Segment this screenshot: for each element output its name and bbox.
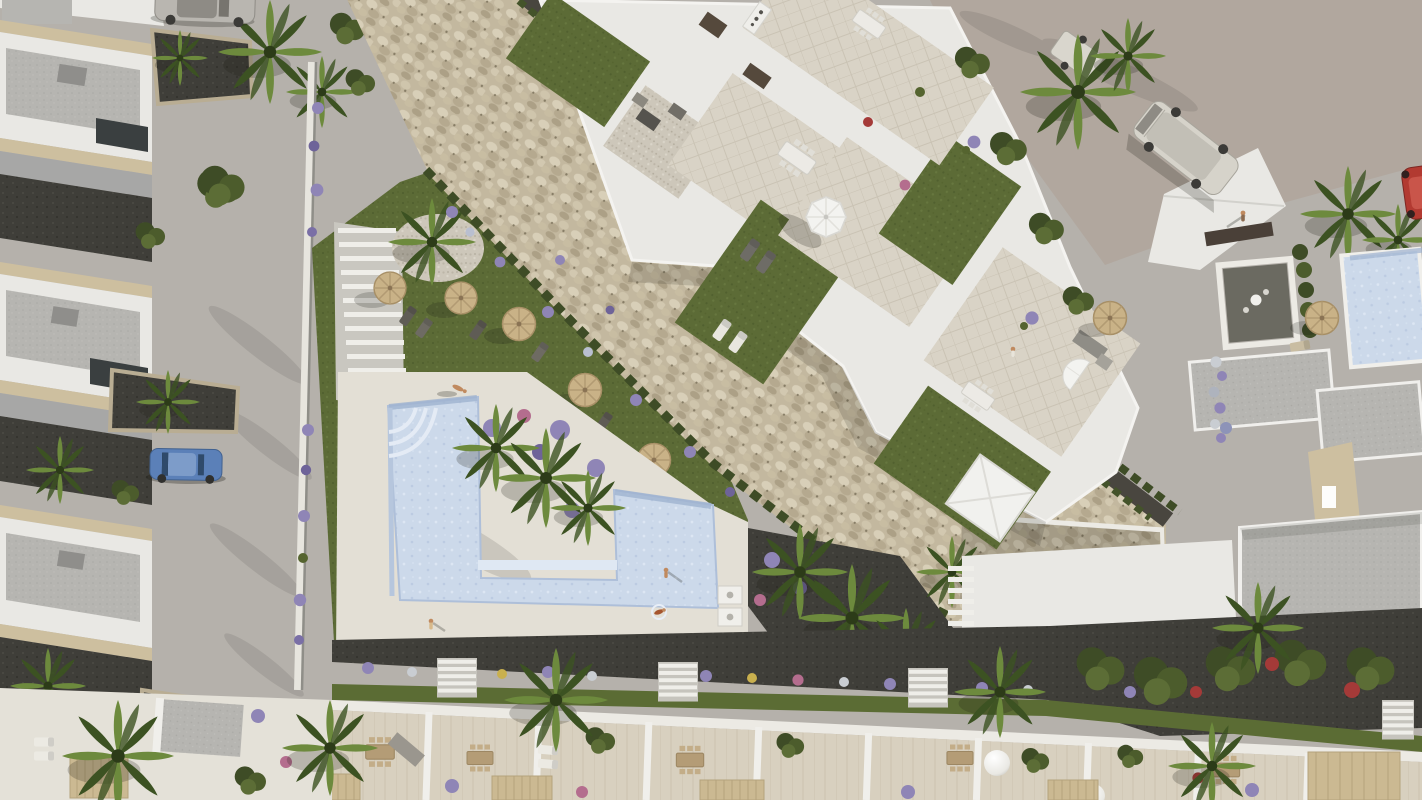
palm-tree <box>1020 34 1136 150</box>
straw-umbrella <box>569 374 602 407</box>
palm-tree <box>286 56 358 128</box>
stairs <box>437 658 477 698</box>
palm-tree <box>282 700 378 796</box>
villa-1 <box>0 20 152 198</box>
lounger <box>34 752 54 761</box>
palm-tree <box>152 30 208 86</box>
palm-tree <box>954 646 1046 738</box>
private-pool <box>1341 249 1422 367</box>
villa-3 <box>0 505 152 661</box>
palm-tree <box>550 470 626 546</box>
stairs <box>658 662 698 702</box>
palm-tree <box>26 436 94 504</box>
palm-tree <box>752 524 848 620</box>
wood-dining-set <box>467 745 493 772</box>
straw-umbrella <box>445 282 477 314</box>
white-parasol <box>806 197 846 237</box>
lounger <box>538 759 559 770</box>
palm-tree <box>136 370 200 434</box>
round-table <box>1251 295 1262 306</box>
wood-dining-set <box>947 745 973 772</box>
lounger <box>34 738 54 747</box>
bottom-left-terraces <box>0 688 378 800</box>
stairs <box>908 668 948 708</box>
white-dome-lamp <box>984 750 1010 776</box>
stairs <box>1382 700 1414 740</box>
palm-tree <box>504 648 608 752</box>
straw-umbrella <box>1306 302 1339 335</box>
pool-bench <box>478 560 617 570</box>
straw-umbrella <box>503 308 536 341</box>
palm-tree <box>1212 582 1304 674</box>
blue-car <box>146 448 227 484</box>
villa0-roofdeck <box>2 0 72 24</box>
wood-dining-set <box>676 746 703 774</box>
palm-tree <box>1090 18 1166 94</box>
straw-umbrella <box>374 272 406 304</box>
small-roof <box>158 699 243 757</box>
aerial-render-canvas: Top-down aerial 3D rendering of a white … <box>0 0 1422 800</box>
straw-umbrella <box>1094 302 1127 335</box>
aerial-render-image: Top-down aerial 3D rendering of a white … <box>0 0 1422 800</box>
pool-edge-shadow <box>390 408 392 596</box>
